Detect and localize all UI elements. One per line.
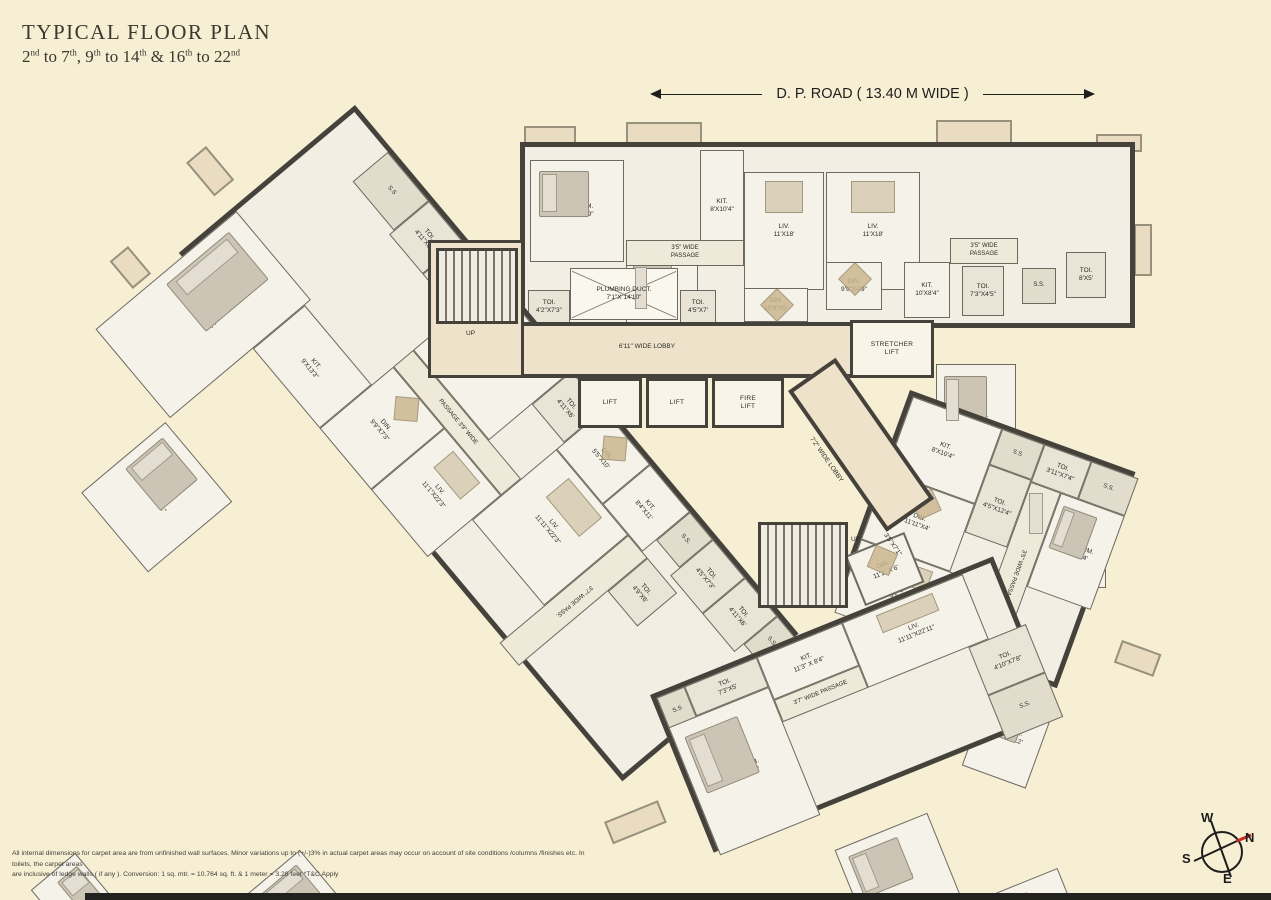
- subtitle-sup: nd: [31, 47, 40, 57]
- subtitle-text: to 14: [101, 47, 140, 66]
- disclaimer-line2: are inclusive of ledge walls ( if any ).…: [12, 870, 597, 880]
- compass-east: E: [1223, 871, 1232, 886]
- plumbing-duct-label: PLUMBING DUCT. 7'1"X 14'10": [597, 286, 652, 303]
- footer-bar: [85, 893, 1271, 900]
- room-living: LIV. 11'X18': [744, 172, 824, 290]
- disclaimer-line1: All internal dimensions for carpet area …: [12, 849, 597, 869]
- room-bedroom: BEDRM. 10'6"X13'1": [81, 422, 232, 572]
- road-label-group: D. P. ROAD ( 13.40 M WIDE ): [650, 82, 1095, 106]
- road-label: D. P. ROAD ( 13.40 M WIDE ): [762, 86, 982, 102]
- staircase-bottom: [758, 522, 848, 608]
- plumbing-duct: PLUMBING DUCT. 7'1"X 14'10": [570, 268, 678, 320]
- subtitle-text: to 22: [192, 47, 231, 66]
- subtitle-sup: th: [70, 47, 77, 57]
- subtitle-sup: nd: [231, 47, 240, 57]
- room-bedroom: BEDRM. 10'6"X13': [835, 813, 965, 900]
- room-dining: DIN. 10'9"X5': [744, 288, 808, 322]
- subtitle-text: 2: [22, 47, 31, 66]
- room-master-bedroom: M.BEDRM. 15'1"X11'5": [95, 211, 311, 418]
- balcony-ledge: [604, 800, 667, 844]
- subtitle-sup: th: [94, 47, 101, 57]
- staircase-top: [436, 248, 518, 324]
- subtitle-text: & 16: [147, 47, 186, 66]
- room-master-bedroom: M.BEDRM. 10'1"X13'9": [530, 160, 624, 262]
- compass-west: W: [1201, 810, 1213, 825]
- plan-subtitle: 2nd to 7th, 9th to 14th & 16th to 22nd: [22, 47, 271, 67]
- balcony-ledge: [626, 122, 702, 144]
- lift-1: LIFT: [578, 378, 642, 428]
- lift-2: LIFT: [646, 378, 708, 428]
- fire-lift: FIRE LIFT: [712, 378, 784, 428]
- subtitle-sup: th: [140, 47, 147, 57]
- arrow-left-icon: [650, 89, 661, 99]
- compass-south: S: [1182, 851, 1191, 866]
- compass-north: N: [1245, 830, 1254, 845]
- road-line: [661, 94, 762, 95]
- compass: W N S E: [1185, 805, 1271, 895]
- subtitle-text: , 9: [77, 47, 94, 66]
- plan-title: TYPICAL FLOOR PLAN: [22, 20, 271, 45]
- subtitle-text: to 7: [40, 47, 70, 66]
- stretcher-lift: STRETCHER LIFT: [850, 320, 934, 378]
- page-title: TYPICAL FLOOR PLAN 2nd to 7th, 9th to 14…: [22, 20, 271, 67]
- passage: 3'5" WIDE PASSAGE: [626, 240, 744, 266]
- balcony-ledge: [936, 120, 1012, 144]
- room-dining: DIN. 9'9"X4'9": [826, 262, 882, 310]
- up-label: UP: [466, 330, 475, 337]
- arrow-right-icon: [1084, 89, 1095, 99]
- room-toilet: TOI. 8'X5': [1066, 252, 1106, 298]
- balcony-ledge: [1134, 224, 1152, 276]
- road-line: [983, 94, 1084, 95]
- balcony-ledge: [186, 146, 234, 196]
- balcony-ledge: [110, 246, 152, 289]
- passage: 3'5" WIDE PASSAGE: [950, 238, 1018, 264]
- room-service-slab: S.S.: [1022, 268, 1056, 304]
- room-toilet: TOI. 4'5"X7': [680, 290, 716, 324]
- room-toilet: TOI. 7'3"X4'5": [962, 266, 1004, 316]
- up-label: UP: [851, 536, 860, 543]
- disclaimer: All internal dimensions for carpet area …: [12, 849, 597, 880]
- balcony-ledge: [1114, 640, 1162, 677]
- floor-plan-page: TYPICAL FLOOR PLAN 2nd to 7th, 9th to 14…: [0, 0, 1271, 900]
- room-kitchen: KIT. 10'X8'4": [904, 262, 950, 318]
